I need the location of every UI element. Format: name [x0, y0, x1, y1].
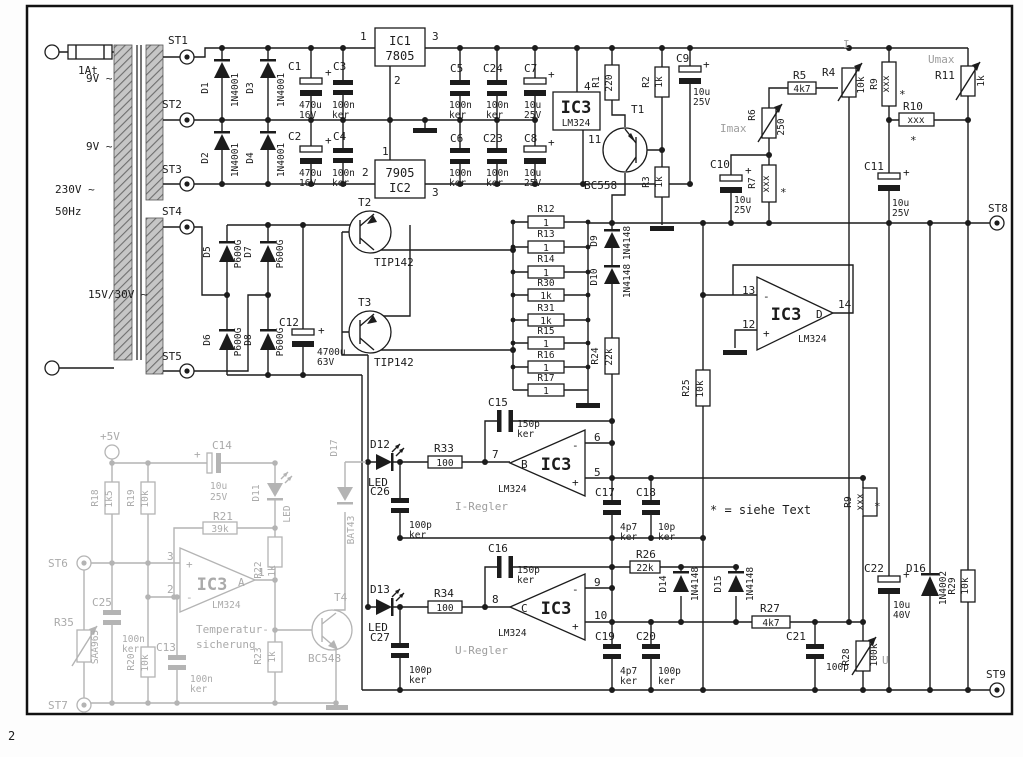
pin-ic2-3: 3: [432, 186, 439, 199]
value-r3: 1k: [654, 176, 665, 188]
plus-c12: +: [318, 324, 325, 337]
plus-opamp-a: +: [186, 558, 193, 571]
label-i-regler: I-Regler: [455, 500, 508, 513]
unit-c10: 25V: [734, 205, 751, 216]
label-c14: C14: [212, 439, 232, 452]
label-d11: D11: [251, 484, 262, 501]
label-st6: ST6: [48, 557, 68, 570]
label-r2: R2: [641, 76, 652, 87]
label-r29: R29: [947, 577, 958, 594]
ground-symbol: [576, 403, 600, 408]
label-r17: R17: [537, 373, 554, 384]
label-d10: D10: [589, 268, 600, 285]
unit-c13: ker: [190, 684, 207, 695]
label-opamp-b-sec: B: [521, 458, 528, 471]
label-opamp-d-ref: IC3: [771, 305, 802, 325]
pin-ic1-1: 1: [360, 30, 367, 43]
label-r5: R5: [793, 69, 806, 82]
pin-opamp-a-2: 2: [167, 583, 174, 596]
label-d4: D4: [245, 152, 256, 164]
label-c20: C20: [636, 630, 656, 643]
label-t3: T3: [358, 296, 371, 309]
unit-c11: 25V: [892, 208, 909, 219]
value-r23: 1k: [267, 651, 278, 663]
value-r18: 1k5: [104, 490, 115, 507]
plus-c7: +: [548, 68, 555, 81]
plus-c11: +: [903, 166, 910, 179]
label-r4: R4: [822, 66, 836, 79]
label-r35: R35: [54, 616, 74, 629]
value-r10: xxx: [907, 115, 924, 126]
label-ic1-type: 7805: [386, 49, 415, 63]
star-r7: *: [780, 186, 787, 199]
pin-ic1-3: 3: [432, 30, 439, 43]
pin-opamp-b-5: 5: [594, 466, 601, 479]
plus-c14: +: [194, 448, 201, 461]
pin-opamp-d-14: 14: [838, 298, 852, 311]
label-d5: D5: [202, 246, 213, 257]
label-d1-type: 1N4001: [230, 73, 241, 108]
terminal-st1: [180, 50, 194, 64]
plus-c10: +: [745, 164, 752, 177]
label-r19: R19: [126, 489, 137, 506]
value-r9-lower: xxx: [855, 493, 866, 510]
pin-opamp-a-1: 1: [258, 566, 265, 579]
label-c17: C17: [595, 486, 615, 499]
unit-c3: ker: [332, 110, 349, 121]
label-mains-freq: 50Hz: [55, 205, 82, 218]
ground-symbol: [326, 705, 348, 710]
circuit-schematic: 2: [0, 0, 1023, 757]
unit-c9: 25V: [693, 97, 710, 108]
label-d13: D13: [370, 583, 390, 596]
label-c15: C15: [488, 396, 508, 409]
unit-c18: ker: [658, 532, 675, 543]
pin-opamp-c-10: 10: [594, 609, 607, 622]
label-r34: R34: [434, 587, 454, 600]
label-ic3-power-type: LM324: [562, 118, 591, 129]
value-r15: 1: [543, 339, 549, 350]
label-c3: C3: [333, 60, 346, 73]
label-r24: R24: [590, 347, 601, 364]
transformer-primary-winding: [114, 45, 132, 360]
pin-ic2-1: 1: [382, 145, 389, 158]
value-r5: 4k7: [793, 84, 810, 95]
value-r28: 100k: [869, 643, 880, 666]
value-r9-upper: xxx: [881, 75, 892, 92]
pin-ic2-2: 2: [362, 166, 369, 179]
label-d8-type: P600G: [275, 327, 286, 356]
label-d9-type: 1N4148: [622, 226, 633, 261]
label-opamp-b-ref: IC3: [541, 455, 572, 475]
terminal-st9: [990, 683, 1004, 697]
label-corner-mark: 2: [8, 729, 15, 743]
label-u: U: [882, 654, 889, 667]
fuse: [45, 45, 112, 59]
plus-opamp-d: +: [763, 327, 770, 340]
label-r12: R12: [537, 204, 554, 215]
pin-opamp-b-7: 7: [492, 448, 499, 461]
label-r30: R30: [537, 278, 554, 289]
label-c22: C22: [864, 562, 884, 575]
label-r18: R18: [90, 489, 101, 506]
label-opamp-b-type: LM324: [498, 484, 527, 495]
unit-c4: ker: [332, 178, 349, 189]
label-st8: ST8: [988, 202, 1008, 215]
terminal-st6: [77, 556, 91, 570]
resistor-r22: [268, 537, 282, 567]
label-r15: R15: [537, 326, 554, 337]
value-r2: 1k: [654, 76, 665, 88]
label-d6: D6: [202, 334, 213, 346]
unit-c2: 16V: [299, 178, 316, 189]
unit-c20: ker: [658, 676, 675, 687]
label-d17: D17: [329, 439, 340, 456]
value-r12: 1: [543, 218, 549, 229]
label-c13: C13: [156, 641, 176, 654]
star-r10: *: [910, 134, 917, 147]
plus-c9: +: [703, 58, 710, 71]
label-temp-title-2: sicherung: [196, 638, 256, 651]
label-r3: R3: [641, 176, 652, 187]
label-t1: T1: [631, 103, 644, 116]
label-opamp-a-ref: IC3: [197, 575, 228, 595]
plus-c8: +: [548, 136, 555, 149]
value-r25: 10k: [695, 380, 706, 397]
label-d3-type: 1N4001: [276, 73, 287, 108]
value-r19: 10k: [140, 490, 151, 507]
label-d7-type: P600G: [275, 239, 286, 268]
label-t4: T4: [334, 591, 348, 604]
label-d17-type: BAT43: [346, 516, 357, 545]
label-c21: C21: [786, 630, 806, 643]
label-opamp-d-sec: D: [816, 308, 823, 321]
schematic-page: 2: [0, 0, 1023, 757]
unit-c23: ker: [486, 178, 503, 189]
minus-opamp-b: -: [572, 439, 579, 452]
label-c9: C9: [676, 52, 689, 65]
label-d8: D8: [243, 334, 254, 346]
terminal-st5: [180, 364, 194, 378]
label-d2: D2: [200, 152, 211, 163]
label-r9-lower: R9: [843, 496, 854, 508]
transistor-t4: [312, 610, 352, 650]
terminal-st4: [180, 220, 194, 234]
label-st5: ST5: [162, 350, 182, 363]
label-c1: C1: [288, 60, 301, 73]
label-footnote: * = siehe Text: [710, 503, 811, 517]
value-r11: 1k: [976, 75, 987, 87]
label-c19: C19: [595, 630, 615, 643]
pin-opamp-d-12: 12: [742, 318, 755, 331]
label-d11-type: LED: [282, 505, 293, 522]
label-imax: Imax: [720, 122, 747, 135]
mains-terminal: [45, 361, 59, 375]
unit-c27: ker: [409, 675, 426, 686]
label-d9: D9: [589, 235, 600, 247]
label-t2: T2: [358, 196, 371, 209]
label-r14: R14: [537, 254, 554, 265]
ground-symbol: [723, 350, 747, 355]
label-ic2: IC2: [389, 181, 411, 195]
transistor-t3: [349, 311, 391, 353]
label-d14: D14: [658, 575, 669, 592]
label-t2-type: TIP142: [374, 256, 414, 269]
label-c16: C16: [488, 542, 508, 555]
transistor-t1: [603, 128, 647, 172]
value-r33: 100: [436, 458, 453, 469]
value-r7: xxx: [761, 175, 772, 192]
value-r17: 1: [543, 386, 549, 397]
plus-c1: +: [325, 66, 332, 79]
label-d16: D16: [906, 562, 926, 575]
label-r21: R21: [213, 510, 233, 523]
label-t1-type: BC558: [584, 179, 617, 192]
label-c2: C2: [288, 130, 301, 143]
transformer-secondary-bottom: [146, 218, 163, 374]
pin-ic1-2: 2: [394, 74, 401, 87]
label-c4: C4: [333, 130, 347, 143]
unit-c5: ker: [449, 110, 466, 121]
unit-c8: 25V: [524, 178, 541, 189]
label-mains-voltage: 230V ~: [55, 183, 95, 196]
value-r26: 22k: [636, 563, 653, 574]
label-opamp-a-sec: A: [238, 576, 245, 589]
value-r22: 1k: [267, 565, 278, 577]
label-c7: C7: [524, 62, 537, 75]
pin-opamp-b-6: 6: [594, 431, 601, 444]
label-ic2-type: 7905: [386, 166, 415, 180]
value-r30: 1k: [540, 291, 552, 302]
value-r13: 1: [543, 243, 549, 254]
label-d15: D15: [713, 575, 724, 592]
unit-c7: 25V: [524, 110, 541, 121]
label-c8: C8: [524, 132, 537, 145]
label-c18: C18: [636, 486, 656, 499]
unit-c15: ker: [517, 429, 534, 440]
label-u-regler: U-Regler: [455, 644, 508, 657]
label-c10: C10: [710, 158, 730, 171]
label-opamp-a-type: LM324: [212, 600, 241, 611]
label-opamp-c-ref: IC3: [541, 599, 572, 619]
minus-opamp-c: -: [572, 583, 579, 596]
label-d15-type: 1N4148: [745, 567, 756, 602]
label-st2: ST2: [162, 98, 182, 111]
label-d12: D12: [370, 438, 390, 451]
unit-c14: 25V: [210, 492, 227, 503]
unit-c24: ker: [486, 110, 503, 121]
label-r28: R28: [841, 648, 852, 665]
label-r35-type: SAA965: [90, 630, 101, 664]
label-r31: R31: [537, 303, 554, 314]
unit-c12: 63V: [317, 357, 334, 368]
label-c6: C6: [450, 132, 463, 145]
ground-symbol: [650, 226, 674, 231]
value-r27: 4k7: [762, 618, 779, 629]
label-st1: ST1: [168, 34, 188, 47]
ground-symbol: [413, 128, 437, 133]
plus-opamp-b: +: [572, 476, 579, 489]
label-c26: C26: [370, 485, 390, 498]
label-t3-type: TIP142: [374, 356, 414, 369]
label-winding-9v-1: 9V ~: [86, 72, 113, 85]
label-c23: C23: [483, 132, 503, 145]
label-ic3-power: IC3: [561, 98, 592, 118]
label-r9-upper: R9: [869, 78, 880, 90]
unit-c16: ker: [517, 575, 534, 586]
label-r16: R16: [537, 350, 554, 361]
label-r20: R20: [126, 653, 137, 670]
label-winding-15v: 15V/30V ~: [88, 288, 148, 301]
pin-opamp-a-3: 3: [167, 550, 174, 563]
label-r25: R25: [681, 379, 692, 396]
value-r6: 250: [776, 118, 787, 135]
label-r27: R27: [760, 602, 780, 615]
pin-ic3-4: 4: [584, 80, 591, 93]
unit-c17: ker: [620, 532, 637, 543]
value-r34: 100: [436, 603, 453, 614]
label-c25: C25: [92, 596, 112, 609]
terminal-st2: [180, 113, 194, 127]
value-r24: 22k: [604, 348, 615, 365]
label-c12: C12: [279, 316, 299, 329]
label-d7: D7: [243, 246, 254, 257]
label-r1: R1: [591, 76, 602, 88]
plus-opamp-c: +: [572, 620, 579, 633]
value-r4: 10k: [856, 76, 867, 93]
pin-opamp-d-13: 13: [742, 284, 755, 297]
terminal-st7: [77, 698, 91, 712]
label-d4-type: 1N4001: [276, 143, 287, 178]
label-c5: C5: [450, 62, 463, 75]
label-d14-type: 1N4148: [690, 567, 701, 602]
value-r21: 39k: [211, 524, 228, 535]
value-r29: 10k: [960, 577, 971, 594]
label-d3: D3: [245, 82, 256, 93]
terminal-st3: [180, 177, 194, 191]
unit-c22: 40V: [893, 610, 910, 621]
label-plus5v: +5V: [100, 430, 120, 443]
label-umax: Umax: [928, 53, 955, 66]
pin-opamp-c-8: 8: [492, 593, 499, 606]
unit-c6: ker: [449, 178, 466, 189]
transistor-t2: [349, 211, 391, 253]
label-d2-type: 1N4001: [230, 143, 241, 178]
label-r26: R26: [636, 548, 656, 561]
label-opamp-c-type: LM324: [498, 628, 527, 639]
value-r1: 220: [604, 74, 615, 91]
star-r9-lower: *: [874, 500, 881, 513]
label-r10: R10: [903, 100, 923, 113]
label-opamp-d-type: LM324: [798, 334, 827, 345]
label-winding-9v-2: 9V ~: [86, 140, 113, 153]
label-c27: C27: [370, 631, 390, 644]
label-c24: C24: [483, 62, 503, 75]
label-t4-type: BC548: [308, 652, 341, 665]
label-st7: ST7: [48, 699, 68, 712]
terminal-plus5v: [105, 445, 119, 459]
label-r6: R6: [747, 109, 758, 121]
unit-c25: ker: [122, 644, 139, 655]
label-opamp-c-sec: C: [521, 602, 528, 615]
label-c11: C11: [864, 160, 884, 173]
unit-c19: ker: [620, 676, 637, 687]
terminal-st8: [990, 216, 1004, 230]
label-d1: D1: [200, 82, 211, 94]
value-c14: 10u: [210, 481, 227, 492]
label-r7: R7: [747, 177, 758, 188]
label-d10-type: 1N4148: [622, 264, 633, 299]
label-st9: ST9: [986, 668, 1006, 681]
plus-c2: +: [325, 134, 332, 147]
label-st4: ST4: [162, 205, 182, 218]
label-r13: R13: [537, 229, 554, 240]
value-r20: 10k: [140, 654, 151, 671]
label-i: I: [843, 38, 850, 51]
pin-opamp-c-9: 9: [594, 576, 601, 589]
label-r11: R11: [935, 69, 955, 82]
unit-c1: 16V: [299, 110, 316, 121]
label-r33: R33: [434, 442, 454, 455]
unit-c26: ker: [409, 530, 426, 541]
pin-ic3-11: 11: [588, 133, 601, 146]
label-temp-title-1: Temperatur-: [196, 623, 269, 636]
transformer-secondary-top: [146, 45, 163, 200]
label-st3: ST3: [162, 163, 182, 176]
minus-opamp-a: -: [186, 591, 193, 604]
minus-opamp-d: -: [763, 290, 770, 303]
label-ic1: IC1: [389, 34, 411, 48]
